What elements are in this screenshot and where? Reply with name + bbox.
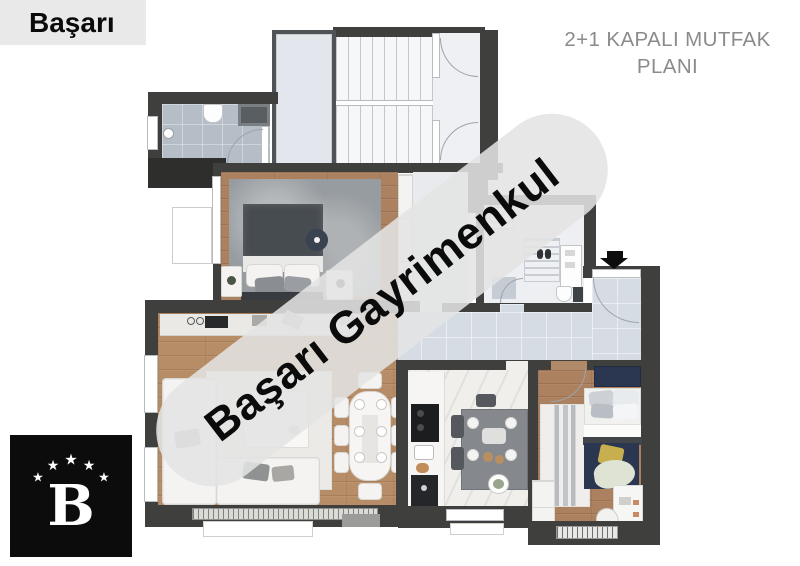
floor-plan-page: Başarı Gayrimenkul Başarı 2+1 KAPALI MUT…: [0, 0, 800, 566]
desk-item: [633, 500, 639, 505]
apartment-right-wall: [641, 266, 660, 545]
entrance-arrow-icon: [600, 251, 628, 269]
plan-title-line2: PLANI: [540, 53, 795, 80]
sofa-cushion: [271, 465, 294, 482]
logo-letter: B: [47, 478, 94, 534]
washer-knob: [565, 250, 575, 256]
kitchen-left-wall: [396, 360, 408, 508]
kitchen-sill: [450, 523, 504, 535]
serving-tray: [482, 428, 506, 444]
bedroom2-radiator: [556, 526, 618, 539]
elevator-shaft: [272, 30, 336, 168]
console-decor: [187, 317, 195, 325]
threshold-step: [342, 514, 380, 527]
plate: [376, 452, 387, 463]
plate: [467, 417, 479, 429]
bowl: [483, 452, 493, 462]
kitchen-sink: [414, 445, 434, 460]
entrance-door-leaf: [592, 269, 641, 278]
slipper-icon: [545, 249, 551, 259]
kitchen-doorway: [506, 361, 528, 370]
plan-title: 2+1 KAPALI MUTFAK PLANI: [540, 26, 795, 81]
plate: [505, 449, 517, 461]
bedroom2-dresser: [594, 366, 641, 387]
kitchen-window: [446, 509, 504, 521]
livingroom-window: [144, 355, 158, 413]
dining-chair: [358, 483, 382, 500]
burner: [417, 410, 424, 417]
star-icon: ★: [32, 471, 44, 484]
stairwell-door-top-leaf: [432, 33, 440, 78]
brand-logo: ★ ★ ★ ★ ★ B: [10, 435, 132, 557]
star-icon: ★: [83, 458, 96, 472]
fruit-bowl: [416, 463, 429, 473]
burner: [417, 424, 424, 431]
bed2-pillow: [591, 403, 615, 419]
star-icon: ★: [64, 453, 77, 468]
desk-item: [633, 512, 639, 517]
plate: [505, 417, 517, 429]
star-icon: ★: [47, 458, 60, 472]
plate: [376, 399, 387, 410]
brand-label-text: Başarı: [29, 7, 115, 38]
livingroom-window: [144, 447, 158, 502]
plate: [354, 426, 365, 437]
balcony-sill: [203, 521, 313, 537]
cooktop: [411, 404, 439, 442]
bathroom1-window: [147, 116, 158, 150]
stairwell-door-bottom-leaf: [432, 120, 440, 165]
star-icon: ★: [98, 471, 110, 484]
kitchen-chair: [476, 394, 496, 407]
shower-head-icon: [163, 128, 174, 139]
toilet: [203, 104, 223, 123]
nightstand-plant: [227, 276, 236, 285]
bed2-pillow: [613, 403, 639, 420]
kitchen-chair: [451, 447, 464, 470]
toilet: [556, 286, 572, 302]
bathroom2-bottom-wall: [476, 303, 592, 312]
bath-shelf: [573, 287, 583, 302]
dining-chair: [334, 425, 349, 446]
tv: [205, 316, 228, 328]
desk-item: [619, 497, 631, 505]
washer-knob: [565, 262, 575, 268]
brand-label: Başarı: [0, 0, 146, 45]
plate: [376, 426, 387, 437]
kitchen-chair: [451, 415, 464, 438]
shower-tray: [238, 104, 270, 126]
bowl: [495, 455, 504, 464]
staircase-landing-line: [336, 100, 433, 106]
plan-title-line1: 2+1 KAPALI MUTFAK: [540, 26, 795, 53]
console-decor: [196, 317, 204, 325]
bedroom1-window: [212, 176, 221, 264]
plate: [354, 399, 365, 410]
plate: [354, 452, 365, 463]
dining-chair: [334, 452, 349, 473]
oven-dial: [421, 485, 427, 491]
ceiling-fan-hub: [314, 237, 320, 243]
bathroom2-doorway: [500, 304, 524, 312]
plate: [467, 449, 479, 461]
bedroom1-window-sill: [172, 207, 212, 264]
bathroom1-top-wall: [148, 92, 278, 104]
plant: [493, 479, 504, 489]
